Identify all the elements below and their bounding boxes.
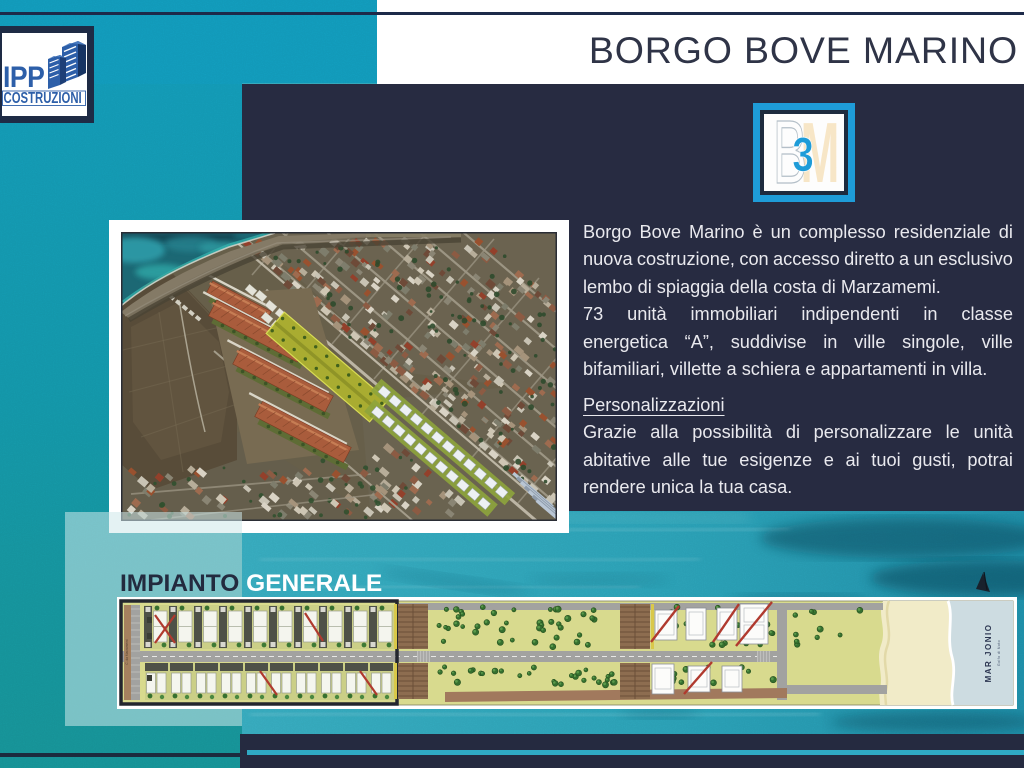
svg-text:Golfo di Noto: Golfo di Noto — [997, 640, 1001, 666]
svg-text:C. da Marzamemi: C. da Marzamemi — [125, 639, 129, 664]
svg-text:3: 3 — [792, 129, 813, 182]
svg-text:MAR JONIO: MAR JONIO — [984, 624, 993, 683]
